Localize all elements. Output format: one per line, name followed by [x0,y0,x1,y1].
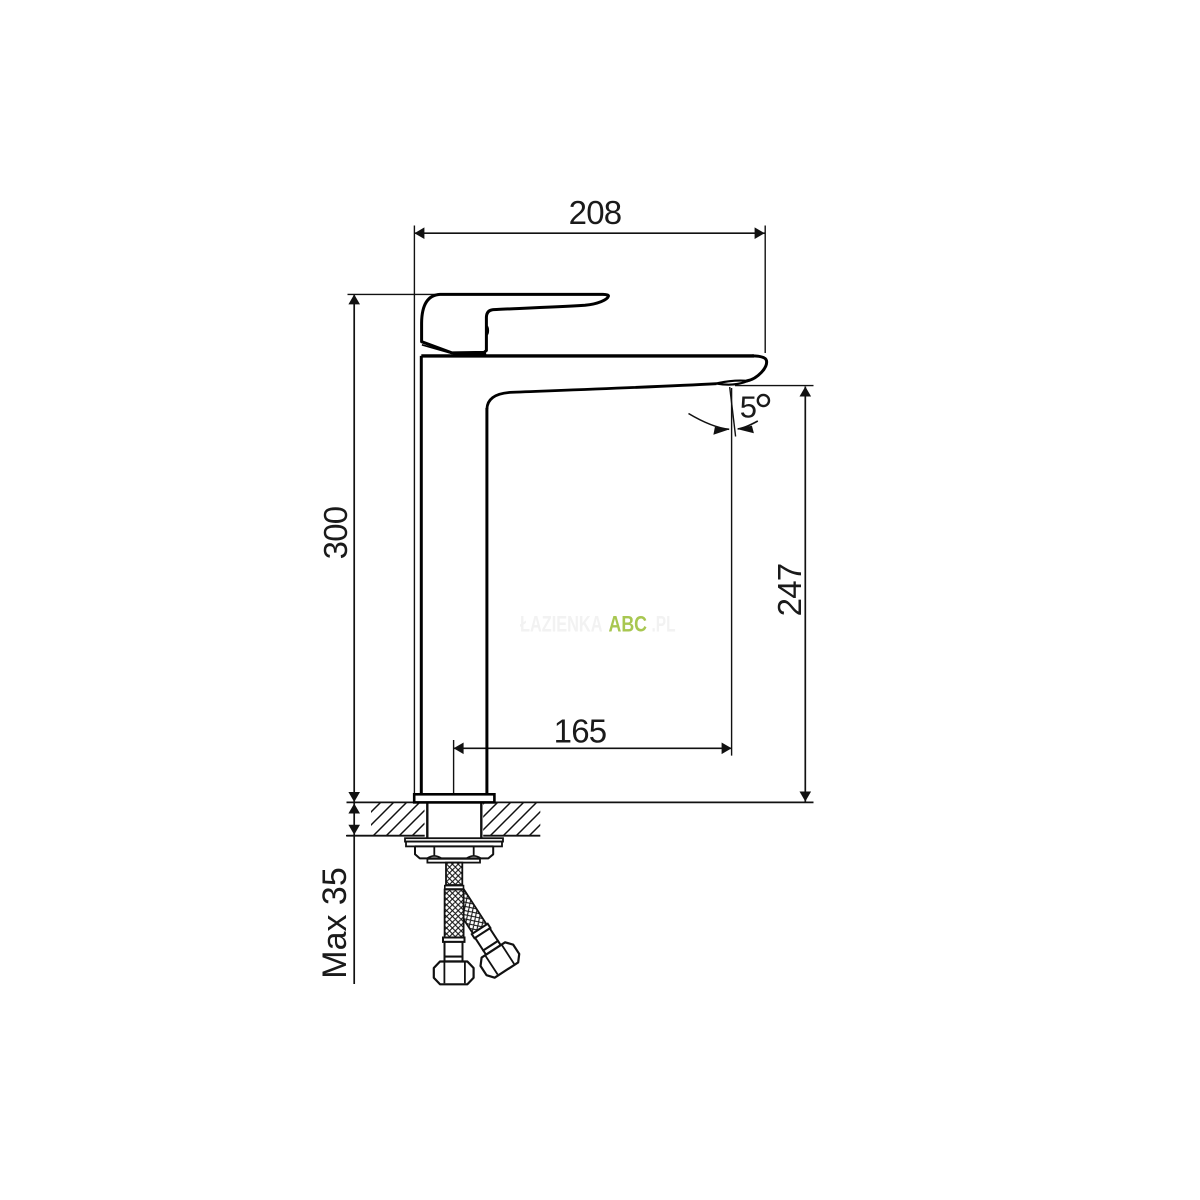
svg-text:247: 247 [771,564,808,617]
svg-text:Max 35: Max 35 [316,867,354,979]
svg-text:ABC: ABC [609,612,648,637]
svg-text:5: 5 [740,390,757,425]
svg-text:.PL: .PL [652,612,676,637]
svg-text:208: 208 [569,194,622,231]
svg-text:165: 165 [554,713,607,750]
svg-text:300: 300 [317,506,354,559]
svg-text:ŁAZIENKA: ŁAZIENKA [520,612,603,637]
